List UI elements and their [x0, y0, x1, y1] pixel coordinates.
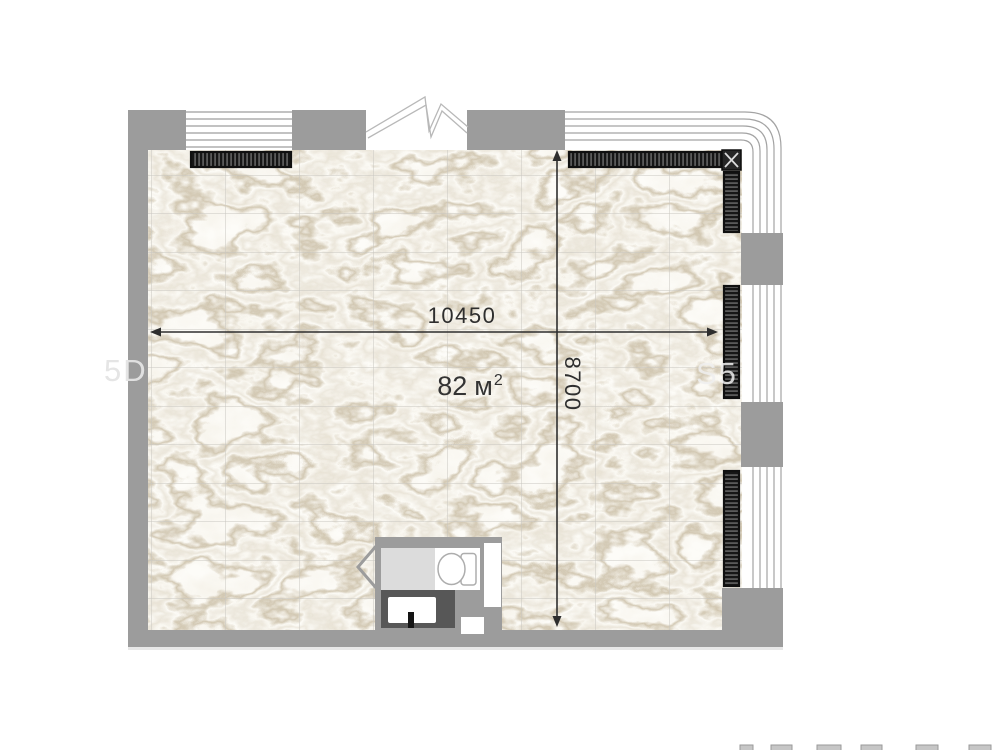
page-edge-marks: [740, 745, 991, 750]
wall-top-2: [292, 110, 366, 150]
niche-opening: [461, 617, 484, 634]
area-unit: м: [474, 371, 493, 401]
wall-bottom: [128, 630, 728, 647]
faucet-icon: [408, 612, 414, 628]
floor-plan: 10450 8700 82м2 5D S5: [0, 0, 1000, 750]
corner-joint-icon: [722, 150, 741, 170]
area-superscript: 2: [494, 372, 503, 389]
area-label: 82м2: [392, 371, 548, 402]
wall-top-1: [128, 110, 186, 150]
wall-corner-block: [722, 588, 783, 647]
wall-top-3: [467, 110, 565, 150]
wall-shadow: [128, 647, 783, 650]
radiator-icon: [191, 152, 291, 167]
bathroom-unit: [358, 537, 502, 634]
wall-pier-2: [741, 402, 783, 467]
radiator-icon: [569, 152, 722, 167]
height-dimension-label: 8700: [559, 334, 585, 434]
area-value: 82: [437, 371, 467, 401]
shower-tray: [381, 548, 435, 590]
window-top-left: [186, 112, 292, 147]
watermark-fragment-left: 5D: [104, 353, 148, 389]
wall-pier-1: [741, 233, 783, 285]
watermark-fragment-right: S5: [696, 356, 738, 392]
radiator-icon: [724, 172, 739, 232]
door-opening: [484, 543, 501, 607]
width-dimension-label: 10450: [382, 303, 542, 329]
radiator-icon: [724, 471, 739, 586]
toilet-icon: [438, 554, 476, 586]
break-line-icon: [366, 97, 468, 138]
